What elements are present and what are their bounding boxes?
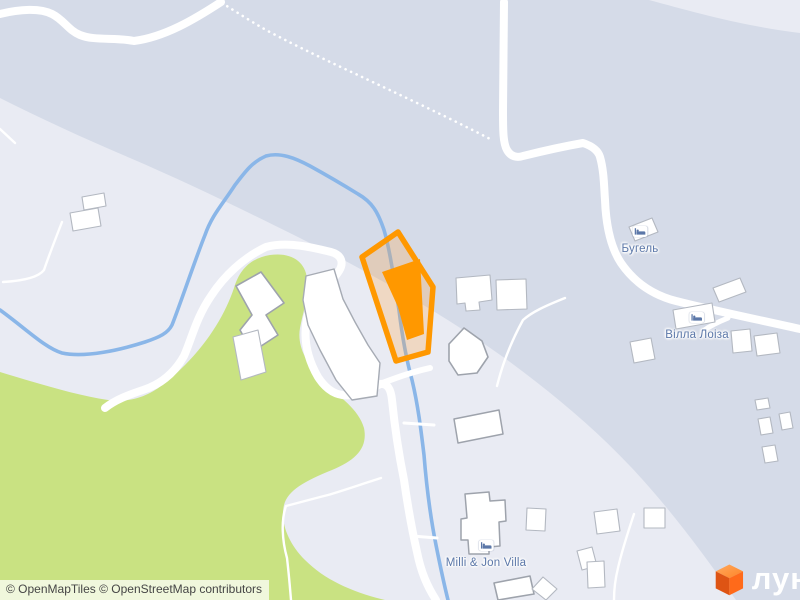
map-tiles-layer — [0, 0, 800, 600]
hotel-icon[interactable] — [689, 312, 704, 323]
building — [755, 398, 770, 410]
poi-label-villa-loiza[interactable]: Вілла Лоіза — [665, 329, 729, 341]
poi-label-milli-jon[interactable]: Milli & Jon Villa — [446, 557, 527, 569]
building — [496, 279, 527, 310]
brand-cube-icon — [714, 559, 745, 599]
building — [754, 333, 780, 356]
building — [644, 508, 665, 528]
building — [587, 561, 605, 588]
building — [758, 417, 773, 435]
poi-label-bugel[interactable]: Бугель — [622, 243, 659, 255]
building — [526, 508, 546, 531]
bridge-path-2 — [412, 536, 437, 538]
poi-villa-loiza[interactable]: Вілла Лоіза — [665, 311, 729, 341]
poi-milli-jon[interactable]: Milli & Jon Villa — [446, 539, 527, 569]
poi-bugel[interactable]: Бугель — [622, 225, 659, 255]
brand-logo-text: лун — [752, 558, 800, 600]
building — [779, 412, 793, 430]
bridge-path-1 — [404, 423, 434, 425]
map-attribution: © OpenMapTiles © OpenStreetMap contribut… — [0, 580, 269, 600]
building — [594, 509, 620, 534]
building — [762, 445, 778, 463]
brand-logo[interactable]: лун — [714, 558, 800, 600]
building — [731, 329, 752, 353]
map-canvas[interactable]: Бугель Вілла Лоіза Milli & Jon Villa © O… — [0, 0, 800, 600]
hotel-icon[interactable] — [479, 540, 494, 551]
hotel-icon[interactable] — [633, 226, 648, 237]
building — [630, 338, 655, 363]
